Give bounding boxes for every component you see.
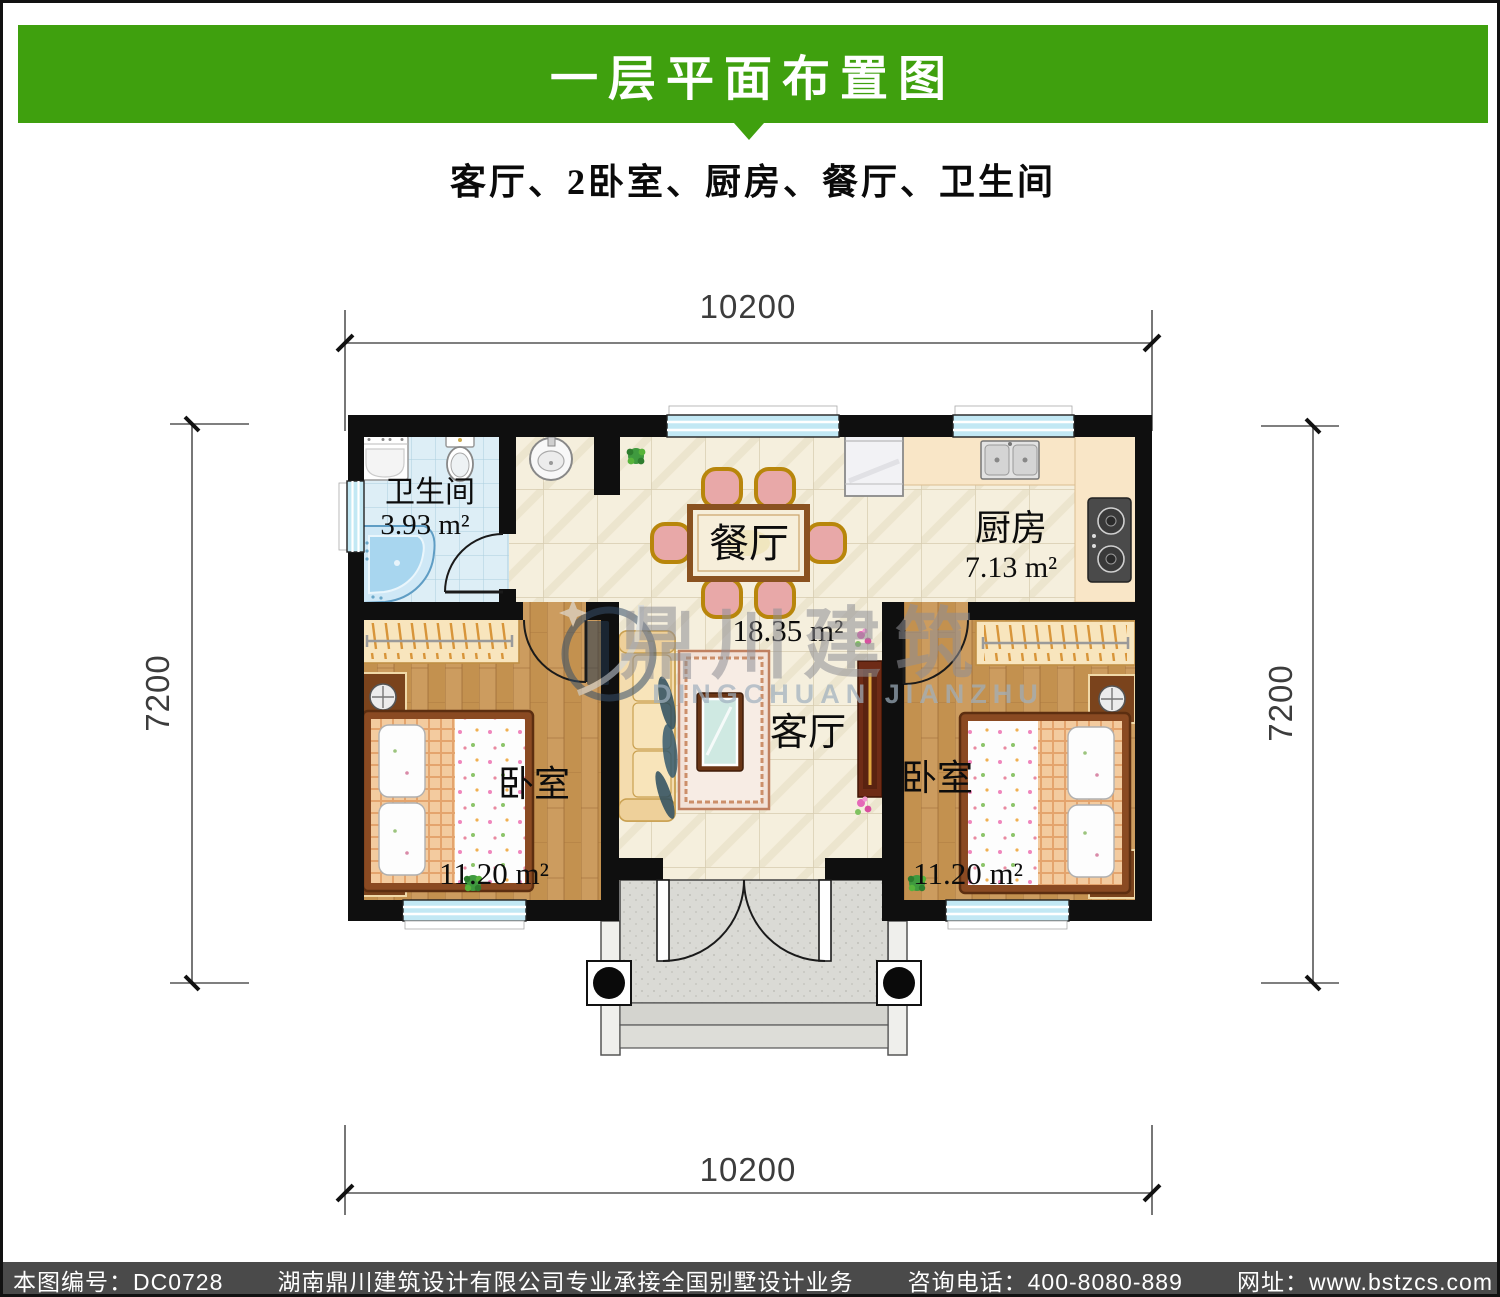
page: 一层平面布置图 客厅、2卧室、厨房、餐厅、卫生间 [0, 0, 1500, 1297]
window-bedroom-left [403, 900, 526, 929]
wardrobe-right [976, 621, 1135, 665]
porch-column-right [877, 961, 921, 1005]
room-label-dining: 餐厅 [709, 521, 789, 566]
floor-plan: 10200 10200 7200 7200 [3, 3, 1500, 1297]
porch-step-1 [620, 1003, 888, 1025]
plant-hall-icon [627, 448, 646, 464]
kitchen-sink [981, 441, 1039, 479]
window-dining [667, 415, 839, 437]
porch-step-2 [620, 1025, 888, 1048]
watermark-cn: 鼎川建筑 [619, 601, 987, 688]
window-kitchen [953, 415, 1074, 437]
dim-right: 7200 [1262, 664, 1299, 741]
watermark: 鼎川建筑 DINGCHUAN JIANZHU [559, 599, 1044, 709]
entry-porch [587, 880, 921, 1055]
room-label-bedroom-right: 卧室 [901, 758, 973, 798]
toilet [446, 433, 474, 481]
window-bathroom [339, 481, 364, 552]
porch-column-left [587, 961, 631, 1005]
wardrobe-left [360, 619, 519, 663]
room-label-bedroom-left: 卧室 [498, 764, 570, 804]
pedestal-sink [530, 437, 572, 480]
watermark-en: DINGCHUAN JIANZHU [652, 679, 1044, 709]
room-area-bedroom-left: 11.20 m² [439, 856, 549, 891]
room-area-bathroom: 3.93 m² [380, 509, 470, 541]
washing-machine [362, 435, 408, 480]
footer-drawing-number: 本图编号：DC0728 [13, 1263, 223, 1297]
room-label-bathroom: 卫生间 [385, 476, 475, 509]
footer-bar: 本图编号：DC0728 湖南鼎川建筑设计有限公司专业承接全国别墅设计业务 咨询电… [3, 1262, 1500, 1297]
room-label-kitchen: 厨房 [975, 508, 1047, 548]
window-bedroom-right [946, 900, 1069, 929]
dim-left: 7200 [139, 654, 176, 731]
footer-website: 网址：www.bstzcs.com [1237, 1263, 1493, 1297]
fridge [845, 434, 903, 496]
room-area-bedroom-right: 11.20 m² [913, 856, 1023, 891]
room-label-living: 客厅 [770, 712, 846, 754]
room-area-kitchen: 7.13 m² [965, 551, 1057, 584]
footer-company: 湖南鼎川建筑设计有限公司专业承接全国别墅设计业务 [278, 1263, 854, 1297]
dim-top: 10200 [700, 288, 797, 325]
gas-stove [1088, 498, 1131, 582]
footer-phone: 咨询电话：400-8080-889 [908, 1263, 1183, 1297]
dim-bottom: 10200 [700, 1151, 797, 1188]
